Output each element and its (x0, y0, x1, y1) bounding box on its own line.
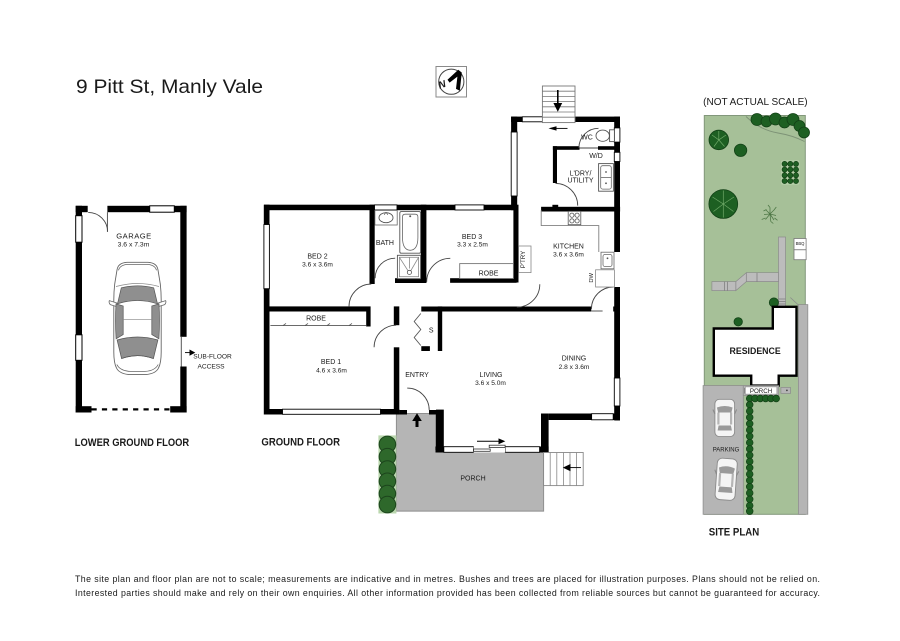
svg-text:KITCHEN: KITCHEN (553, 244, 584, 251)
svg-text:P'TRY: P'TRY (520, 251, 527, 269)
svg-text:SITE PLAN: SITE PLAN (709, 526, 759, 538)
svg-text:4.6 x 3.6m: 4.6 x 3.6m (316, 367, 347, 374)
svg-text:LIVING: LIVING (480, 372, 503, 379)
svg-text:3.6 x 5.0m: 3.6 x 5.0m (475, 380, 506, 387)
svg-text:2.8 x 3.6m: 2.8 x 3.6m (559, 364, 590, 371)
svg-text:ACCESS: ACCESS (197, 364, 225, 371)
svg-text:PARKING: PARKING (713, 448, 740, 454)
svg-text:GARAGE: GARAGE (116, 231, 152, 240)
svg-text:GROUND FLOOR: GROUND FLOOR (261, 437, 340, 449)
svg-text:DINING: DINING (562, 356, 587, 363)
svg-text:RESIDENCE: RESIDENCE (730, 346, 781, 357)
svg-text:3.3 x 2.5m: 3.3 x 2.5m (457, 242, 488, 249)
svg-text:(NOT ACTUAL SCALE): (NOT ACTUAL SCALE) (703, 97, 807, 108)
svg-text:BATH: BATH (376, 240, 394, 247)
svg-text:L'DRY/: L'DRY/ (570, 170, 592, 177)
svg-text:9 Pitt St, Manly Vale: 9 Pitt St, Manly Vale (76, 76, 263, 98)
svg-text:The site plan and floor plan a: The site plan and floor plan are not to … (75, 574, 820, 584)
svg-text:PORCH: PORCH (460, 476, 485, 483)
svg-text:LOWER GROUND FLOOR: LOWER GROUND FLOOR (75, 437, 189, 449)
svg-text:UTILITY: UTILITY (567, 178, 593, 185)
svg-text:BED 1: BED 1 (321, 359, 341, 366)
svg-text:3.6 x 7.3m: 3.6 x 7.3m (118, 242, 150, 249)
svg-text:BED 3: BED 3 (462, 234, 482, 241)
svg-text:3.6 x 3.6m: 3.6 x 3.6m (302, 261, 333, 268)
svg-text:S: S (429, 328, 434, 335)
svg-text:3.6 x 3.6m: 3.6 x 3.6m (553, 252, 584, 259)
svg-text:ENTRY: ENTRY (405, 372, 429, 379)
svg-text:ROBE: ROBE (306, 316, 326, 323)
svg-text:BBQ: BBQ (796, 241, 806, 246)
svg-text:BED 2: BED 2 (307, 254, 327, 261)
svg-text:WC: WC (581, 135, 593, 142)
svg-text:PORCH: PORCH (750, 388, 772, 395)
svg-text:W/D: W/D (589, 153, 603, 160)
svg-text:Interested parties should make: Interested parties should make and rely … (75, 588, 820, 598)
svg-text:ROBE: ROBE (479, 270, 499, 277)
svg-text:SUB-FLOOR: SUB-FLOOR (193, 354, 232, 361)
svg-text:DW: DW (589, 272, 595, 282)
